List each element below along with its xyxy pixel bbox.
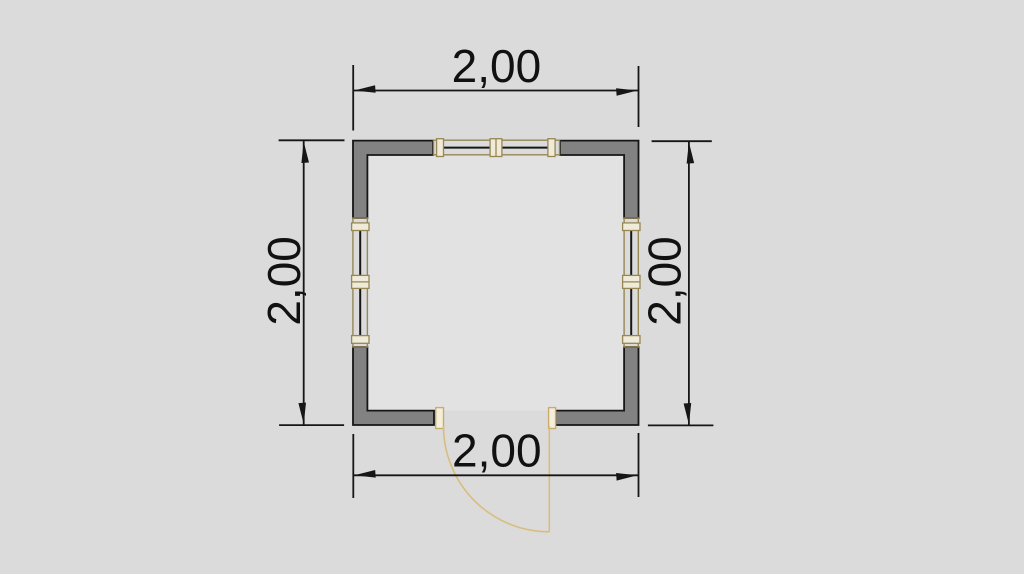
svg-text:2,00: 2,00 bbox=[452, 40, 542, 92]
svg-text:2,00: 2,00 bbox=[258, 236, 310, 326]
svg-text:2,00: 2,00 bbox=[639, 236, 691, 326]
svg-text:2,00: 2,00 bbox=[452, 424, 542, 476]
